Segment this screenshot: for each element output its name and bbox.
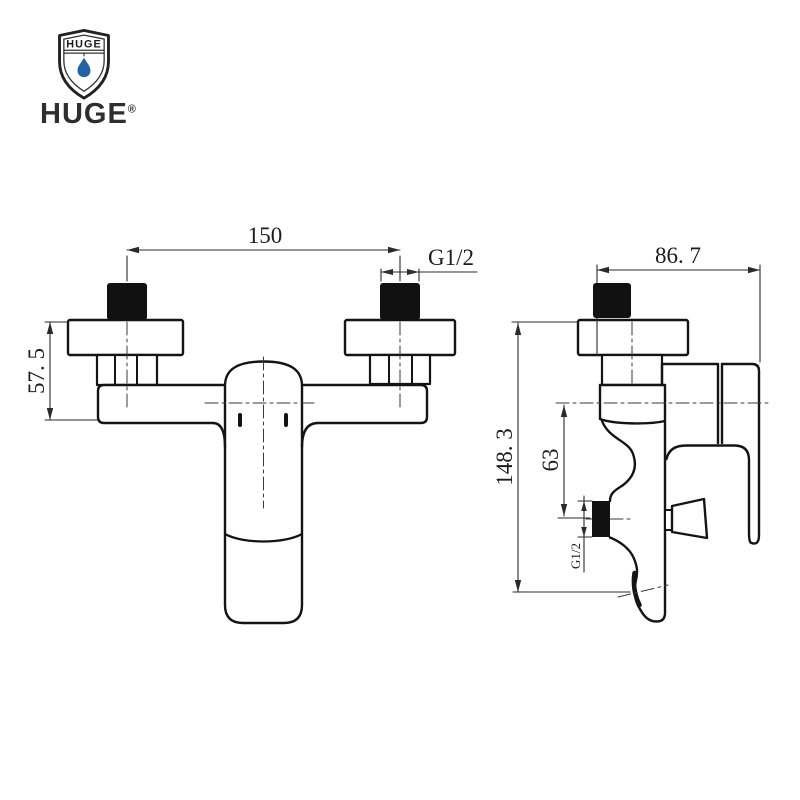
dim-side-outlet-offset-label: 63 xyxy=(538,449,563,472)
side-collar xyxy=(600,385,665,423)
dim-front-thread-label: G1/2 xyxy=(428,245,474,270)
faucet-technical-drawing: 150 G1/2 57. 5 xyxy=(0,0,800,800)
side-diverter-knob xyxy=(665,499,707,538)
side-body-back-edge xyxy=(641,422,666,622)
dim-side-total-height-label: 148. 3 xyxy=(492,428,517,486)
front-inlet-left xyxy=(107,283,147,320)
dim-side-outlet-thread-label: G1/2 xyxy=(568,543,583,569)
side-flange xyxy=(578,320,688,355)
front-inlet-right xyxy=(380,283,420,320)
dim-front-height-label: 57. 5 xyxy=(24,348,49,394)
front-view: 150 G1/2 57. 5 xyxy=(24,223,477,623)
side-outlet-port xyxy=(592,501,610,537)
dim-side-depth-label: 86. 7 xyxy=(655,243,701,268)
side-view: 86. 7 148. 3 63 G1/2 xyxy=(492,243,772,622)
technical-drawing-page: HUGE HUGE® xyxy=(0,0,800,800)
side-body-front-profile-upper xyxy=(602,421,635,501)
front-flange-left xyxy=(68,320,183,355)
dim-front-width-label: 150 xyxy=(248,223,283,248)
side-inlet-port xyxy=(593,283,631,318)
side-dimension-arrows xyxy=(515,267,760,592)
